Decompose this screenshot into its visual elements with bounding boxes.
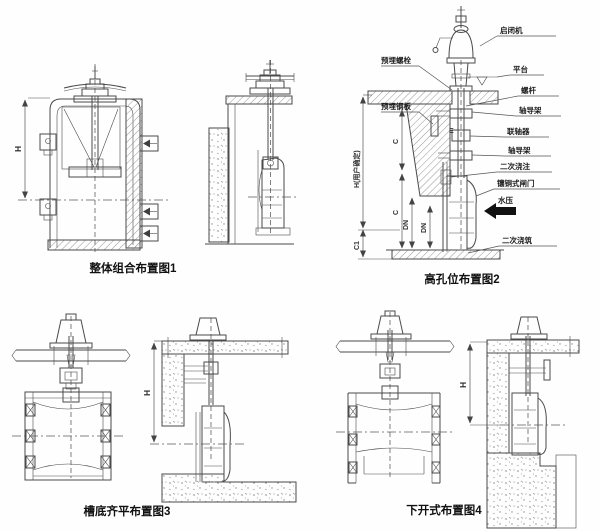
platform-slab [470,91,498,104]
gate-leaf-side [256,150,290,235]
figure2-high-position-section: H(用户确定) C1 C C DN DN E 预埋螺栓 预埋钢板 启闭机 平台 … [352,6,561,286]
callout-gate: 镶铜式闸门 [497,178,535,188]
fig1-dim-h: H [13,146,23,152]
fig2-dim-c-lower: C [393,210,400,215]
figure1-side-view [205,60,296,244]
callout-embedded-bolts: 预埋螺栓 [381,55,411,65]
wall-lug [40,199,56,220]
handwheel-side-icon [246,60,294,94]
concrete-wall [209,128,229,242]
callout-secondary-grout-lower: 二次浇筑 [502,235,532,245]
ground-slab [392,250,500,259]
stem-side [526,317,530,442]
fig2-dim-e: E [449,128,454,135]
callout-stem-guide-upper: 轴导架 [519,105,542,115]
top-plate [226,96,292,104]
callout-screw-stem: 螺杆 [521,85,536,95]
bolt-pads [349,406,440,473]
fig2-dim-h-user: H(用户确定) [352,150,361,188]
figure1-front-view: H 整体组合布置图1 [13,64,177,275]
platform-slab [487,340,579,353]
level-symbol-icon [468,77,497,85]
gate-frame-front [348,386,440,483]
callout-embedded-plate: 预埋钢板 [381,101,411,111]
callout-coupling: 联轴器 [507,126,530,136]
hoist-cone-icon [371,311,411,339]
fig3-dim-h: H [142,390,152,396]
fig4-caption: 下开式布置图4 [406,503,482,517]
callout-hoist: 启闭机 [500,25,523,35]
base-concrete [487,453,556,528]
diagram-canvas: H 整体组合布置图1 [0,0,600,531]
gate-installation-diagram: H 整体组合布置图1 [0,0,600,531]
hoist-machine [433,6,475,91]
fig2-dim-dn-left: DN [403,220,410,230]
hoist-cone-icon [511,317,547,339]
stem-side [268,60,273,236]
fig2-dim-dn-right: DN [421,223,428,233]
stem-front [386,312,394,480]
fig2-caption: 高孔位布置图2 [424,272,499,286]
hoist-cone-icon [190,318,226,340]
callout-water-pressure: 水压 [498,195,513,205]
wall-lug [40,134,56,155]
base-sill [48,240,140,250]
fig2-dim-c-upper: C [393,139,400,144]
figure4-side-section: H [458,317,579,528]
gate-leaf-section [512,393,546,455]
anchor-bracket [140,204,158,219]
base-concrete [162,474,296,502]
fig1-caption: 整体组合布置图1 [89,261,177,275]
anchor-bracket [140,136,158,151]
figure4-front-view: 下开式布置图4 [336,311,482,517]
screw-stem [458,60,464,252]
gate-leaf [62,107,120,169]
fig4-dim-h: H [458,382,468,388]
concrete-wall [162,354,184,426]
gate-frame-front [25,388,111,480]
callout-platform: 平台 [513,64,528,74]
callout-secondary-grout-upper: 二次浇注 [500,161,530,171]
coupling-front [60,368,82,389]
concrete-wall [487,353,509,453]
gate-slot [556,455,576,528]
fig2-dim-c1: C1 [354,241,361,250]
figure3-side-section: H [142,318,296,502]
stem [92,64,98,252]
water-pressure-arrow-icon [484,203,516,219]
stem-front [67,316,75,478]
figure3-front-view: 槽底齐平布置图3 [12,314,170,518]
callout-stem-guide-lower: 轴导架 [508,145,531,155]
platform-slab [162,341,288,354]
gate-leaf-section [443,162,476,252]
fig3-caption: 槽底齐平布置图3 [84,504,171,518]
anchor-bracket [140,226,158,241]
